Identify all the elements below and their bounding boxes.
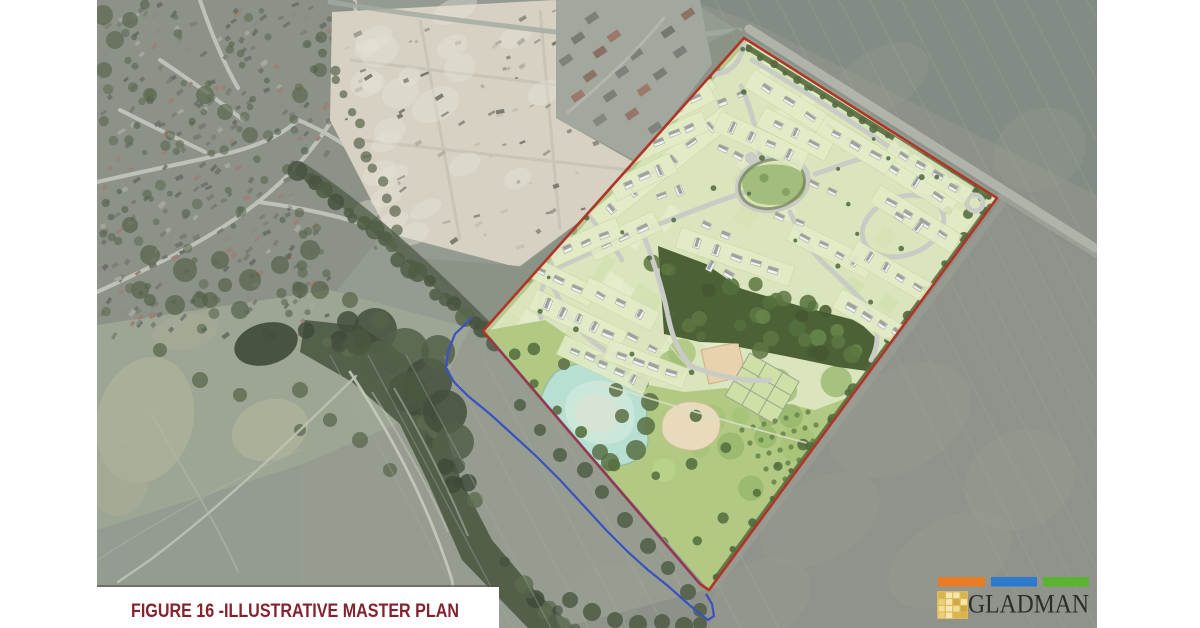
svg-text:GLADMAN: GLADMAN: [968, 589, 1089, 619]
svg-text:FIGURE 16 -ILLUSTRATIVE MASTER: FIGURE 16 -ILLUSTRATIVE MASTER PLAN: [131, 600, 459, 622]
